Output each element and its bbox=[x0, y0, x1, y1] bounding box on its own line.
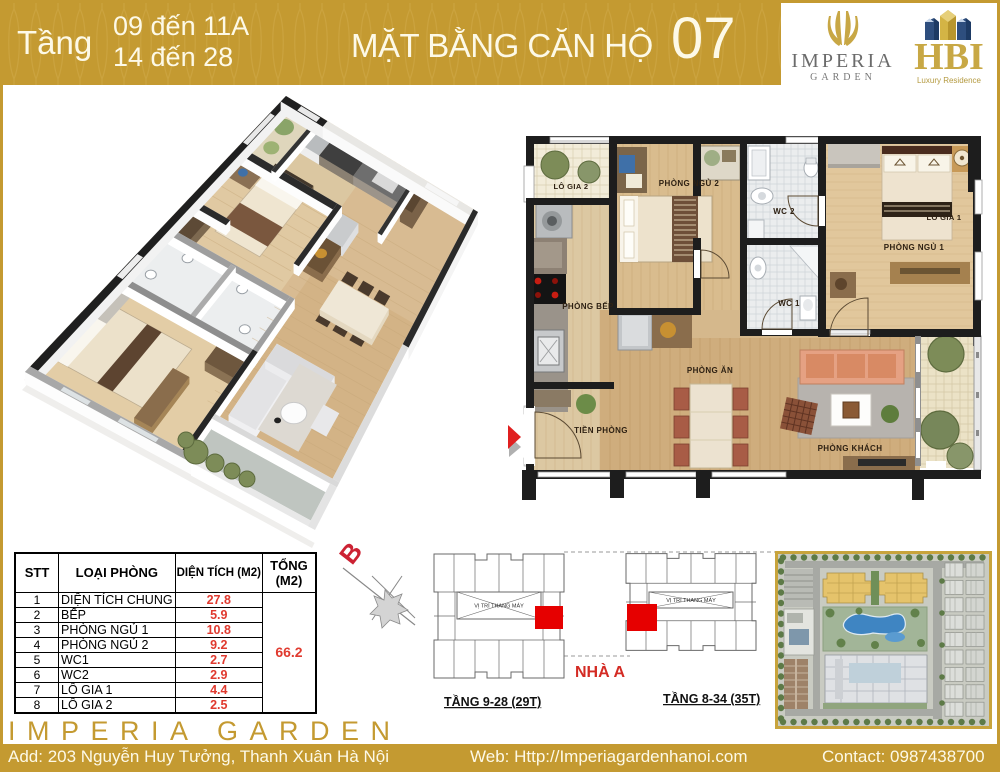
svg-text:NHÀ A: NHÀ A bbox=[575, 662, 626, 681]
svg-text:TẦNG 8-34 (35T): TẦNG 8-34 (35T) bbox=[663, 691, 760, 706]
svg-text:TẦNG 9-28 (29T): TẦNG 9-28 (29T) bbox=[444, 694, 541, 709]
svg-text:PHÒNG BẾP: PHÒNG BẾP bbox=[562, 301, 614, 311]
svg-text:PHÒNG NGỦ 2: PHÒNG NGỦ 2 bbox=[659, 179, 720, 188]
svg-text:VỊ TRÍ THANG MÁY: VỊ TRÍ THANG MÁY bbox=[474, 603, 524, 610]
svg-text:VỊ TRÍ THANG MÁY: VỊ TRÍ THANG MÁY bbox=[666, 597, 716, 604]
svg-text:PHÒNG NGỦ 1: PHÒNG NGỦ 1 bbox=[884, 243, 945, 252]
svg-text:TIỀN PHÒNG: TIỀN PHÒNG bbox=[574, 425, 628, 435]
svg-text:WC 1: WC 1 bbox=[778, 299, 800, 308]
svg-text:LÔ GIA 1: LÔ GIA 1 bbox=[926, 213, 961, 222]
svg-text:PHÒNG ĂN: PHÒNG ĂN bbox=[687, 366, 733, 375]
svg-text:PHÒNG KHÁCH: PHÒNG KHÁCH bbox=[818, 444, 883, 453]
svg-text:LÔ GIA 2: LÔ GIA 2 bbox=[553, 182, 588, 191]
svg-text:B: B bbox=[333, 540, 368, 570]
svg-text:WC 2: WC 2 bbox=[773, 207, 795, 216]
